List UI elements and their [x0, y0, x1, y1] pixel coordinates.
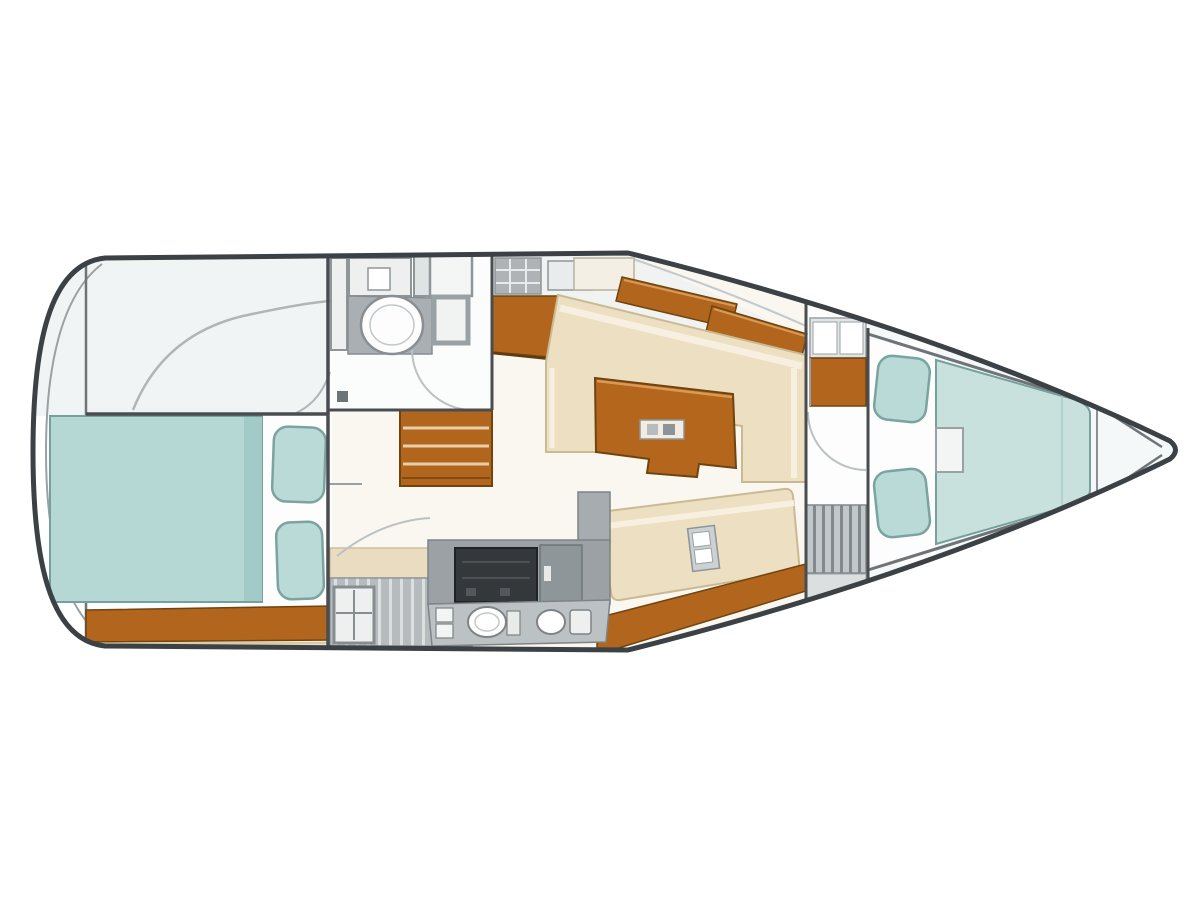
- galley-burner: [570, 610, 591, 634]
- stove-knob: [466, 588, 476, 596]
- fridge-handle: [544, 566, 551, 581]
- galley-end-cabinet: [578, 492, 610, 544]
- aft-berth-pillow: [276, 521, 325, 600]
- aft-berth-pillow: [272, 426, 327, 503]
- vberth-pillow: [873, 354, 931, 423]
- boat-floor-plan: [0, 0, 1200, 900]
- wardrobe-louver: [806, 505, 866, 573]
- bench-latch: [688, 525, 720, 571]
- companionway-steps: [400, 410, 492, 486]
- head-hatch-panel: [430, 252, 472, 296]
- sink-fitting: [436, 608, 453, 622]
- passage-shelf-pane: [813, 322, 837, 354]
- aft-cabin-wood-shelf: [86, 606, 332, 642]
- vberth-center-step: [936, 428, 963, 472]
- stove-knob: [500, 588, 510, 596]
- table-latch-plate: [640, 420, 684, 439]
- galley-sink-bowl: [537, 610, 565, 634]
- head-locker: [331, 258, 347, 350]
- head-shower-seat: [434, 297, 468, 343]
- aft-berth-mattress: [50, 416, 262, 602]
- table-latch-square: [647, 424, 658, 435]
- aft-deck-floor: [36, 254, 330, 416]
- bench-latch-square: [694, 548, 713, 564]
- head-floor-drain: [337, 391, 348, 402]
- galley-sink-bowl: [468, 607, 506, 637]
- overhead-hatch-grid: [495, 258, 541, 294]
- head-mirror-pane: [368, 268, 390, 290]
- sink-fitting: [436, 624, 453, 638]
- vberth-pillow: [873, 467, 932, 538]
- passage-shelf-pane: [840, 322, 863, 354]
- passage-cabinet: [810, 358, 866, 406]
- boat-floor-plan-canvas: [0, 0, 1200, 900]
- interior: [36, 250, 1190, 654]
- sink-divider: [507, 611, 520, 635]
- table-latch-square: [663, 424, 675, 435]
- bench-latch-square: [692, 531, 711, 547]
- aft-berth-foot-shade: [244, 417, 262, 601]
